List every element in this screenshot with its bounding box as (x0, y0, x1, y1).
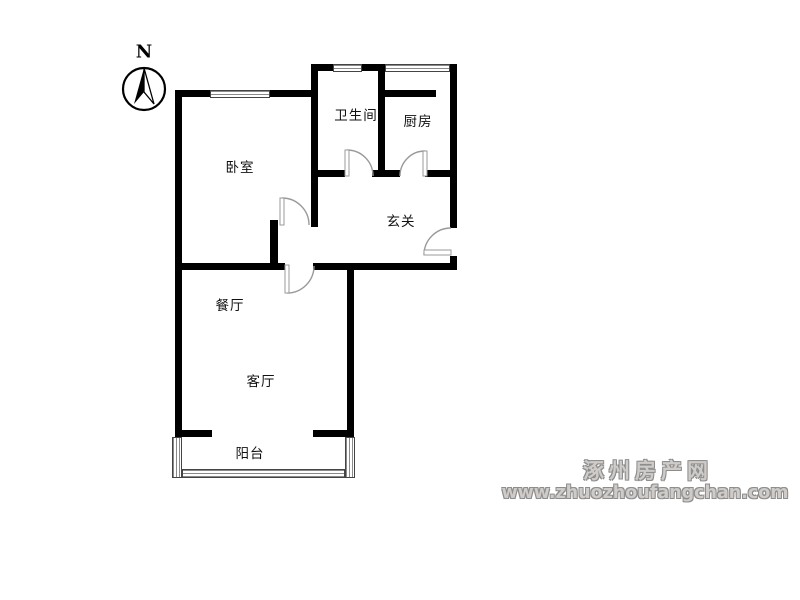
floorplan-canvas: N 卧室 卫生间 厨房 玄关 餐厅 客厅 阳台 涿州房产网 www.zhuozh… (0, 0, 800, 600)
kitchen-door-arc (400, 151, 425, 176)
kitchen-label: 厨房 (404, 110, 433, 130)
bathroom-door-arc (347, 150, 373, 176)
north-compass-icon (123, 68, 165, 110)
watermark-site-url: www.zhuozhoufangchan.com (501, 483, 788, 503)
dining-door-leaf (285, 265, 289, 293)
dining-label: 餐厅 (216, 294, 245, 314)
kitchen-door-leaf (423, 151, 427, 176)
bathroom-door-leaf (345, 150, 349, 176)
bedroom-door-arc (282, 198, 309, 225)
compass-north-label: N (136, 42, 152, 63)
watermark-site-name: 涿州房产网 (583, 455, 713, 485)
entrance-door-leaf (424, 250, 451, 255)
balcony-label: 阳台 (236, 442, 265, 462)
living-label: 客厅 (247, 370, 276, 390)
bedroom-label: 卧室 (226, 156, 255, 176)
doors-compass-overlay (0, 0, 800, 600)
dining-door-arc (287, 266, 314, 293)
bedroom-door-leaf (280, 198, 284, 225)
bathroom-label: 卫生间 (334, 104, 378, 124)
entry-label: 玄关 (387, 210, 416, 230)
